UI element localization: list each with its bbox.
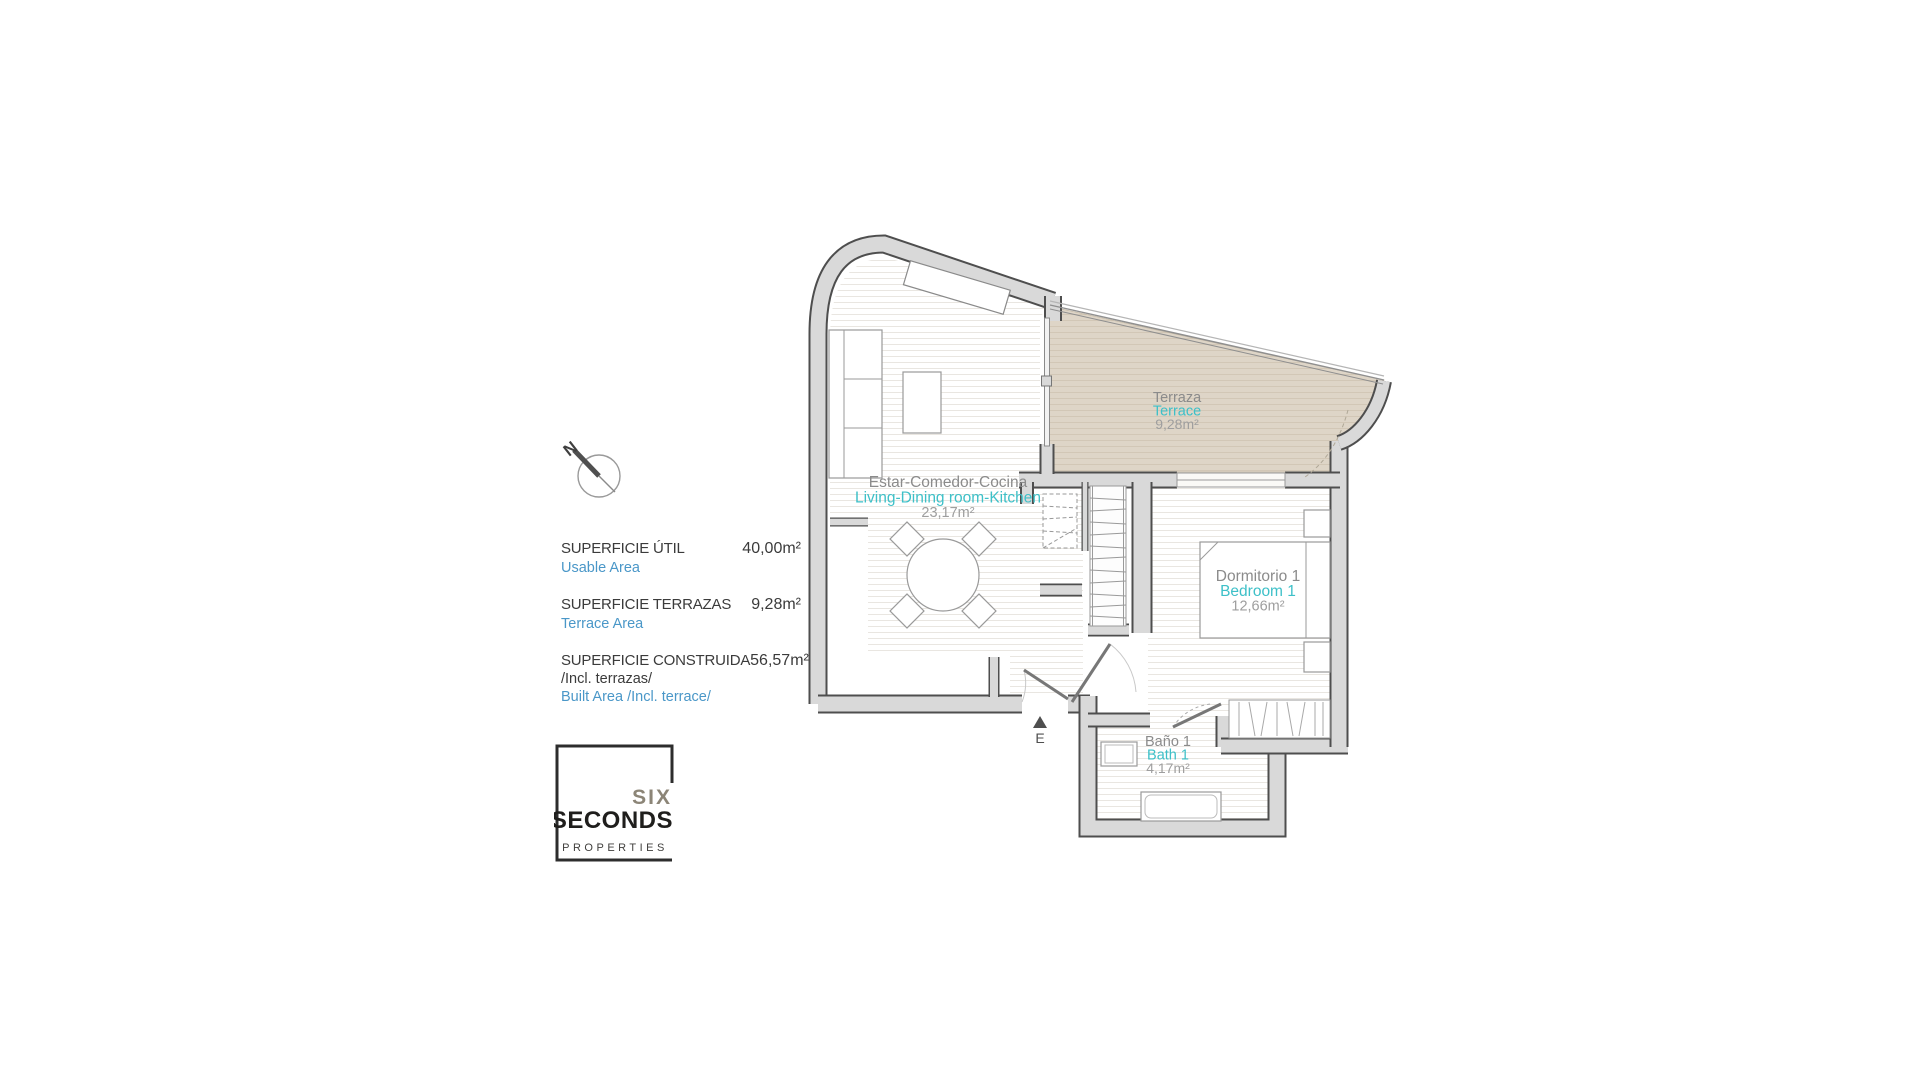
terrace-area-title: SUPERFICIE TERRAZAS xyxy=(561,596,731,613)
usable-area-value: 40,00m² xyxy=(742,540,801,558)
living-room-area: 23,17m² xyxy=(921,505,974,521)
entrance-marker: E xyxy=(1033,716,1047,746)
bathroom-sink xyxy=(1101,742,1137,766)
built-area-title2: /Incl. terrazas/ xyxy=(561,671,801,687)
wardrobe xyxy=(1229,700,1330,738)
entrance-label: E xyxy=(1035,730,1044,746)
terrace-area: 9,28m² xyxy=(1155,416,1199,432)
sofa xyxy=(829,330,882,478)
staircase-dashed-flight xyxy=(1043,494,1077,548)
logo-word-six: SIX xyxy=(632,786,672,809)
built-area-subtitle: Built Area /Incl. terrace/ xyxy=(561,689,801,705)
north-compass-icon: N xyxy=(556,434,640,518)
usable-area-title: SUPERFICIE ÚTIL xyxy=(561,540,685,557)
bath-area: 4,17m² xyxy=(1146,760,1190,776)
mullion xyxy=(1042,376,1052,386)
living-floor-plain-bottom xyxy=(830,654,1010,694)
coffee-table xyxy=(903,372,941,433)
entrance-arrow-icon xyxy=(1033,716,1047,728)
legend-row-usable: SUPERFICIE ÚTIL 40,00m² Usable Area xyxy=(561,540,801,576)
living-room-name-en: Living-Dining room-Kitchen xyxy=(855,490,1041,507)
terrace-area-subtitle: Terrace Area xyxy=(561,616,801,632)
dining-table xyxy=(907,539,979,611)
nightstand xyxy=(1304,510,1330,537)
bedroom-name-en: Bedroom 1 xyxy=(1220,583,1296,600)
bedroom-terrace-window xyxy=(1177,473,1285,487)
legend-row-built: SUPERFICIE CONSTRUIDA 56,57m² /Incl. ter… xyxy=(561,652,801,705)
terrace-area-value: 9,28m² xyxy=(751,596,801,614)
six-seconds-logo: SIX SECONDS PROPERTIES xyxy=(554,743,678,865)
nightstand xyxy=(1304,642,1330,672)
logo-word-properties: PROPERTIES xyxy=(562,842,668,854)
legend-row-terrace: SUPERFICIE TERRAZAS 9,28m² Terrace Area xyxy=(561,596,801,632)
logo-word-seconds: SECONDS xyxy=(554,807,673,834)
usable-area-subtitle: Usable Area xyxy=(561,560,801,576)
floorplan-page: { "compass": {"label": "N"}, "legend": {… xyxy=(0,0,1920,1080)
bedroom-area: 12,66m² xyxy=(1231,599,1284,615)
glass-partition xyxy=(1042,318,1052,446)
area-legend: SUPERFICIE ÚTIL 40,00m² Usable Area SUPE… xyxy=(561,540,801,725)
bathtub xyxy=(1141,792,1221,821)
built-area-title: SUPERFICIE CONSTRUIDA xyxy=(561,652,750,669)
living-room-name-es: Estar-Comedor-Cocina xyxy=(869,474,1028,491)
floorplan-drawing: E Estar-Comedor-Cocina Living-Dining roo… xyxy=(800,230,1400,860)
